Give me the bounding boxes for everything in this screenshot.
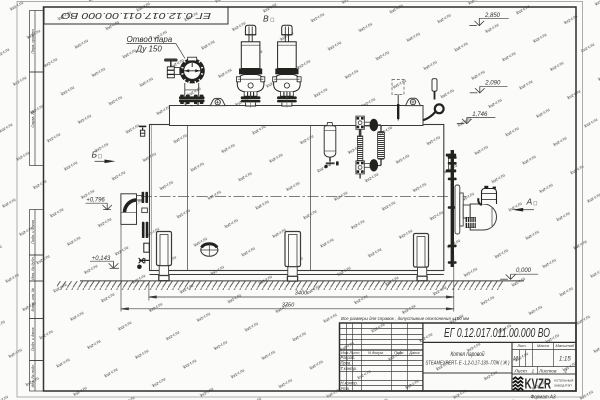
svg-text:Подп. и дата: Подп. и дата <box>31 328 35 352</box>
svg-text:КОТЕЛЬНЫЙ: КОТЕЛЬНЫЙ <box>554 379 573 383</box>
svg-text:ЕГ 0.12.017.011.00.000 ВО: ЕГ 0.12.017.011.00.000 ВО <box>60 11 211 20</box>
svg-text:+0,143: +0,143 <box>92 256 111 262</box>
svg-text:Масса: Масса <box>537 343 550 348</box>
svg-text:+0,796: +0,796 <box>86 198 105 204</box>
svg-text:Подп. и дата: Подп. и дата <box>31 220 35 244</box>
svg-text:1: 1 <box>532 368 535 374</box>
svg-text:Пров.: Пров. <box>341 360 352 365</box>
svg-text:И: И <box>513 355 518 362</box>
svg-text:Инв. № подл.: Инв. № подл. <box>31 364 35 388</box>
svg-text:Формат А3: Формат А3 <box>531 394 557 400</box>
svg-text:Утв.: Утв. <box>341 386 350 391</box>
svg-text:Листов: Листов <box>538 368 557 374</box>
svg-text:Справ. №: Справ. № <box>31 110 35 127</box>
svg-text:Перв. примен.: Перв. примен. <box>31 28 35 53</box>
svg-text:3400: 3400 <box>295 291 308 297</box>
svg-text:Все размеры для справок , допу: Все размеры для справок , допустимые отк… <box>341 316 470 322</box>
svg-text:1,746: 1,746 <box>472 112 488 118</box>
svg-text:Взам. инв. №: Взам. инв. № <box>31 288 35 311</box>
svg-text:2,850: 2,850 <box>484 13 501 19</box>
svg-text:2,090: 2,090 <box>484 81 501 87</box>
svg-text:KVZR: KVZR <box>525 376 552 392</box>
svg-text:ЕГ 0.12.017.011.00.000 ВО: ЕГ 0.12.017.011.00.000 ВО <box>444 325 550 340</box>
svg-text:2: 2 <box>564 368 568 374</box>
svg-text:Ду 150: Ду 150 <box>136 45 163 54</box>
svg-text:STEAMEXPERT- Е -1,2-0,17-130-: STEAMEXPERT- Е -1,2-0,17-130- ГЛЖ ( Ж ) <box>426 361 510 367</box>
svg-text:ЗАВОД РЭП: ЗАВОД РЭП <box>554 384 572 388</box>
svg-text:Отвод пара: Отвод пара <box>127 35 173 44</box>
svg-text:Н.контр.: Н.контр. <box>341 381 358 386</box>
svg-text:N докум.: N докум. <box>368 350 384 355</box>
svg-text:Котел паровой: Котел паровой <box>451 351 486 358</box>
svg-text:Лит.: Лит. <box>516 343 526 348</box>
svg-text:0,000: 0,000 <box>516 268 532 274</box>
svg-text:Изм.Лист: Изм.Лист <box>341 350 360 355</box>
svg-text:Инв. № дубл.: Инв. № дубл. <box>31 256 35 279</box>
svg-text:Т.контр.: Т.контр. <box>341 366 358 371</box>
svg-text:А: А <box>526 197 533 207</box>
svg-text:3750: 3750 <box>282 302 295 308</box>
svg-text:Подп.: Подп. <box>394 350 404 355</box>
svg-text:Б: Б <box>92 150 98 160</box>
svg-text:1:15: 1:15 <box>559 357 571 363</box>
svg-text:Масштаб: Масштаб <box>556 343 575 348</box>
svg-text:Дата: Дата <box>408 350 420 355</box>
svg-text:В: В <box>263 14 269 24</box>
svg-text:Лист: Лист <box>514 368 527 374</box>
